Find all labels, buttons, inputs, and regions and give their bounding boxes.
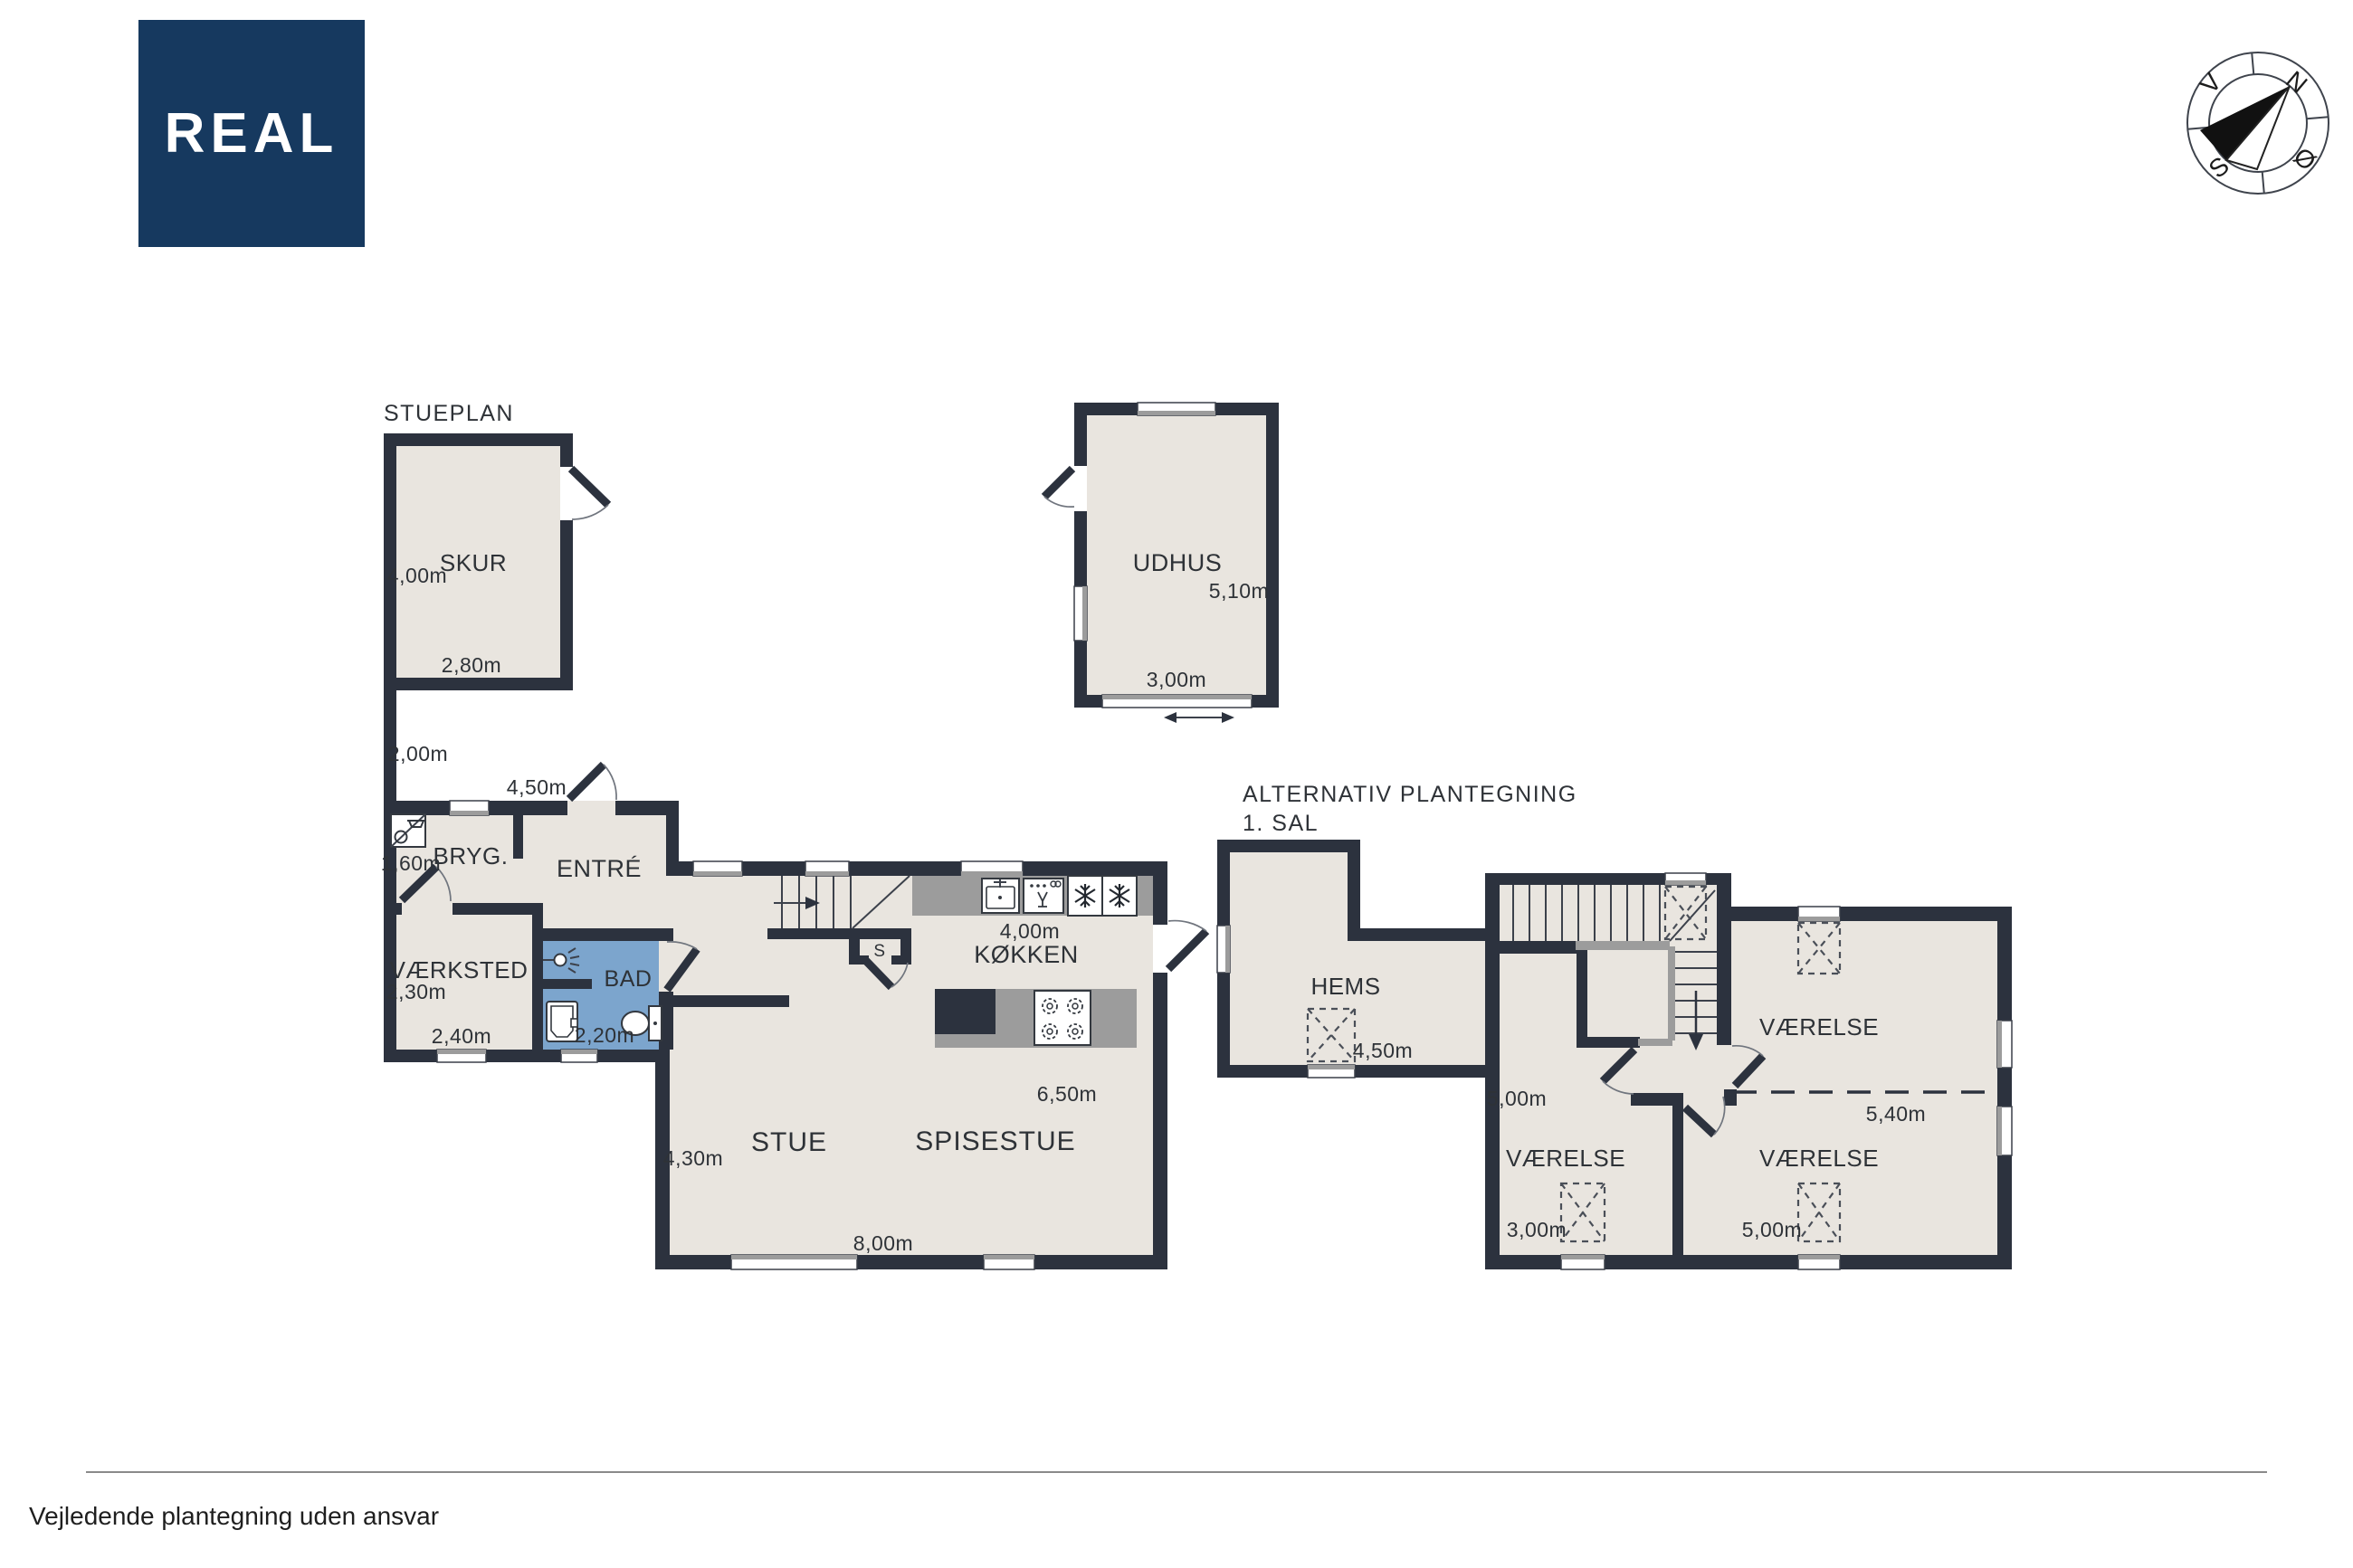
spisestue-label: SPISESTUE — [915, 1126, 1075, 1156]
kitchen-sink-icon — [982, 879, 1019, 913]
spisestue-width-dim: 8,00m — [853, 1231, 913, 1255]
dishwasher-icon — [1024, 879, 1063, 913]
stove-icon — [1034, 991, 1091, 1045]
kitchen-island — [935, 989, 1137, 1048]
washbasin-icon — [547, 1002, 577, 1041]
entre-label: ENTRÉ — [557, 855, 642, 882]
room-bottom-right-width-dim: 5,00m — [1742, 1218, 1802, 1241]
skur-width-dim: 2,80m — [442, 653, 501, 677]
koekken-exit-door — [1168, 921, 1206, 969]
vaerksted-width-dim: 2,40m — [432, 1024, 491, 1048]
first-floor-plan: ALTERNATIV PLANTEGNING 1. SAL — [1217, 782, 2012, 1269]
stue-label: STUE — [751, 1127, 827, 1157]
bad-label: BAD — [605, 966, 653, 992]
skur-door — [571, 469, 608, 519]
udhus-door — [1044, 469, 1074, 507]
room-top-right-dim: 5,40m — [1866, 1102, 1926, 1126]
first-floor-title: ALTERNATIV PLANTEGNING — [1243, 782, 1577, 807]
bad-width-dim: 2,20m — [575, 1023, 634, 1047]
skur-label: SKUR — [440, 549, 507, 576]
room-top-right-label: VÆRELSE — [1759, 1013, 1879, 1041]
sliding-door-arrow-icon — [1164, 712, 1234, 723]
room-left-width-dim: 3,00m — [1507, 1218, 1567, 1241]
stue-height-dim: 4,30m — [663, 1146, 723, 1170]
udhus-width-dim: 3,00m — [1147, 668, 1206, 691]
entre-entry-door — [569, 765, 616, 800]
udhus-label: UDHUS — [1133, 549, 1223, 576]
floor-plan-canvas: STUEPLAN — [0, 0, 2353, 1568]
entre-width-dim: 4,50m — [507, 775, 567, 799]
stair-closet-label: S — [873, 942, 885, 961]
entre-door-gap-floor — [567, 801, 615, 815]
koekken-width-dim: 4,00m — [1000, 919, 1060, 943]
first-floor-subtitle: 1. SAL — [1243, 811, 1319, 836]
udhus-height-dim: 5,10m — [1209, 579, 1269, 603]
skur-height-dim: 4,00m — [387, 564, 447, 587]
washing-machine-icon — [391, 814, 425, 847]
fridge-freezer-icon — [1068, 876, 1137, 916]
room-left-height-dim: 5,00m — [1487, 1087, 1547, 1110]
hems-label: HEMS — [1310, 973, 1380, 1000]
udhus-plan: UDHUS 5,10m 3,00m — [1044, 403, 1279, 723]
vaerksted-height-dim: 2,30m — [386, 980, 446, 1003]
stueplan-title: STUEPLAN — [384, 401, 514, 426]
room-bottom-right-label: VÆRELSE — [1759, 1145, 1879, 1172]
koekken-label: KØKKEN — [974, 941, 1079, 968]
floorplan-page: REAL N V S Ø STUEPLAN — [0, 0, 2353, 1568]
passage-dim: 2,00m — [388, 742, 448, 765]
room-left-label: VÆRELSE — [1506, 1145, 1625, 1172]
footer-disclaimer: Vejledende plantegning uden ansvar — [29, 1502, 439, 1531]
bryg-label: BRYG. — [433, 842, 509, 870]
hems-width-dim: 4,50m — [1353, 1039, 1413, 1062]
spisestue-height-dim: 6,50m — [1037, 1082, 1097, 1106]
bryg-dim: 1,60m — [381, 851, 441, 875]
footer-divider — [86, 1471, 2267, 1473]
